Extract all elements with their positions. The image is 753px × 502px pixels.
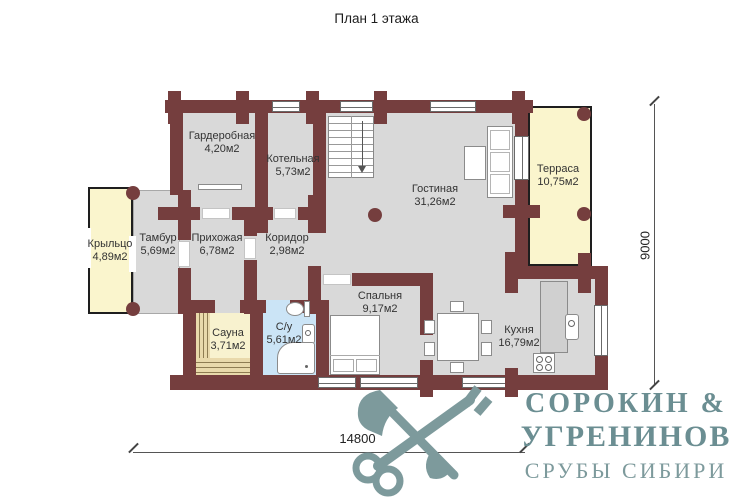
door-leaf	[323, 274, 351, 285]
log-column	[126, 186, 140, 200]
room-area: 9,17м2	[330, 303, 430, 316]
wall-log-end	[503, 205, 540, 218]
window	[340, 101, 373, 112]
room-name: Кухня	[479, 324, 559, 337]
sauna-bench	[188, 358, 250, 375]
room-name: Гардеробная	[172, 130, 272, 143]
room-area: 16,79м2	[479, 337, 559, 350]
pillow	[333, 359, 354, 372]
wall-segment	[505, 252, 518, 293]
wall-log-end	[374, 91, 387, 124]
room-label-boiler: Котельная 5,73м2	[243, 153, 343, 179]
dimension-line-height	[654, 104, 655, 385]
room-area: 5,61м2	[254, 334, 314, 347]
room-name: Гостиная	[385, 183, 485, 196]
wall-segment	[515, 106, 528, 136]
room-area: 5,73м2	[243, 166, 343, 179]
chair	[450, 362, 464, 373]
stove-burner	[545, 356, 552, 363]
room-label-living: Гостиная 31,26м2	[385, 183, 485, 209]
room-label-sauna: Сауна 3,71м2	[193, 327, 263, 353]
room-area: 10,75м2	[523, 176, 593, 189]
room-label-kitchen: Кухня 16,79м2	[479, 324, 559, 350]
room-area: 2,98м2	[247, 245, 327, 258]
wardrobe-shelf	[198, 184, 242, 190]
wall-segment	[308, 195, 321, 233]
dining-table	[437, 313, 479, 361]
wall-segment	[595, 279, 608, 305]
toilet	[286, 302, 304, 316]
logo-tagline: СРУБЫ СИБИРИ	[520, 458, 732, 484]
dimension-height-label: 9000	[638, 221, 653, 271]
chair	[424, 320, 435, 334]
room-name: Котельная	[243, 153, 343, 166]
room-label-bathroom: С/у 5,61м2	[254, 321, 314, 347]
window	[272, 101, 300, 112]
floor-plan-page: План 1 этажа	[0, 0, 753, 502]
room-label-bedroom: Спальня 9,17м2	[330, 290, 430, 316]
log-column	[126, 302, 140, 316]
logo-brand-line2: УГРЕНИНОВ	[520, 420, 732, 454]
door-leaf	[202, 208, 230, 219]
room-label-terrace: Терраса 10,75м2	[523, 163, 593, 189]
stove-burner	[536, 356, 543, 363]
wall-segment	[505, 266, 608, 279]
room-label-corridor: Коридор 2,98м2	[247, 232, 327, 258]
chair	[450, 301, 464, 312]
stove-burner	[545, 364, 552, 371]
room-name: Терраса	[523, 163, 593, 176]
kitchen-sink	[565, 314, 579, 340]
wall-log-end	[236, 91, 249, 124]
room-name: С/у	[254, 321, 314, 334]
stairs-arrow	[362, 121, 363, 167]
log-column	[577, 107, 591, 121]
door-leaf	[274, 208, 296, 219]
sofa-cushion	[490, 130, 510, 150]
logo-brand-line1: СОРОКИН &	[520, 388, 732, 420]
window	[594, 305, 608, 356]
coffee-table	[464, 146, 486, 180]
room-area: 31,26м2	[385, 196, 485, 209]
wall-log-end	[578, 253, 591, 293]
stairs-arrow-head	[358, 166, 366, 173]
stairs-divider	[351, 116, 352, 178]
sofa-cushion	[490, 152, 510, 172]
wall-segment	[232, 207, 273, 220]
room-area: 3,71м2	[193, 340, 263, 353]
stove-burner	[536, 364, 543, 371]
room-name: Коридор	[247, 232, 327, 245]
wall-segment	[240, 300, 266, 313]
bed-blanket-line	[330, 355, 380, 356]
toilet-tank	[304, 301, 310, 317]
pillow	[356, 359, 377, 372]
window	[430, 101, 476, 112]
room-name: Спальня	[330, 290, 430, 303]
log-column	[368, 208, 382, 222]
sofa-cushion	[490, 174, 510, 194]
log-column	[577, 207, 591, 221]
chair	[424, 342, 435, 356]
wall-segment	[183, 300, 215, 313]
faucet	[568, 320, 575, 327]
room-name: Сауна	[193, 327, 263, 340]
logo-axe-key-icon	[348, 382, 526, 500]
page-title: План 1 этажа	[0, 11, 753, 26]
shower-drain	[305, 365, 308, 368]
